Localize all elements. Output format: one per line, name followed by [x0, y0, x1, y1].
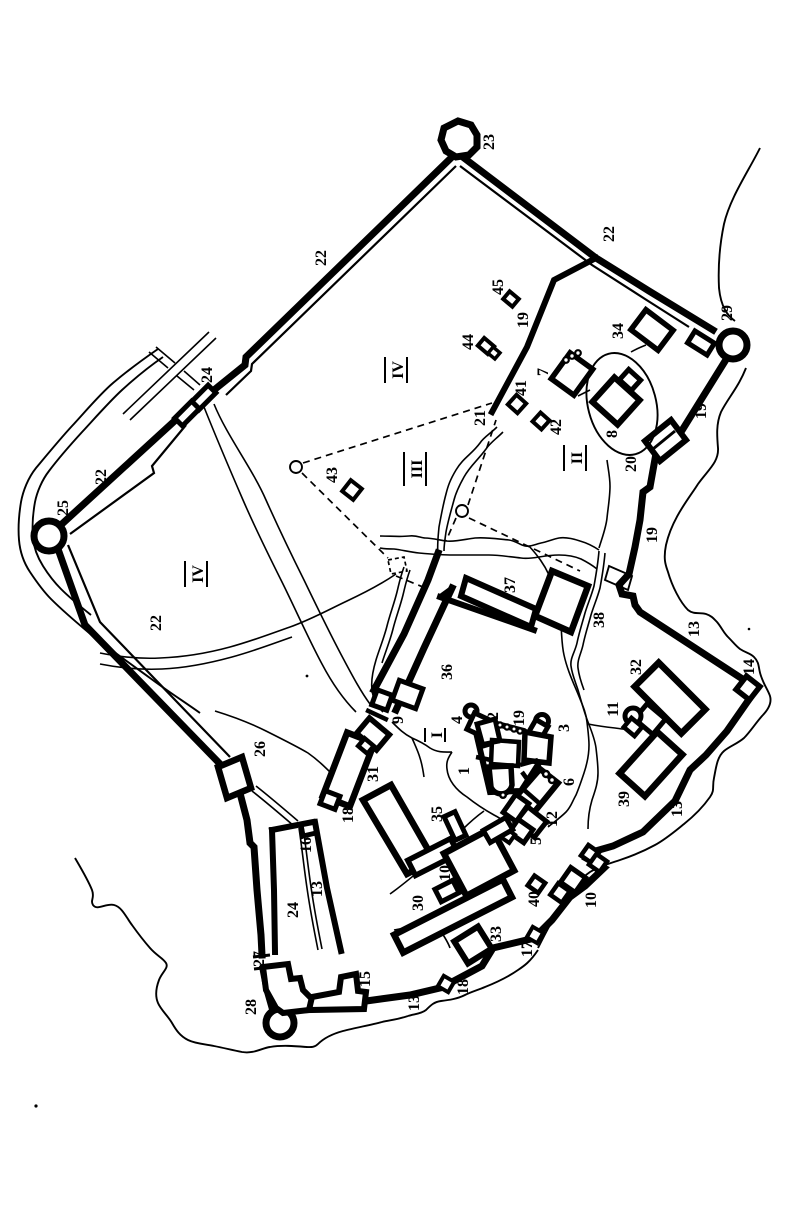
svg-text:23: 23 — [481, 134, 498, 150]
svg-text:34: 34 — [610, 323, 627, 339]
svg-text:13: 13 — [406, 995, 423, 1011]
svg-text:11: 11 — [605, 701, 622, 716]
svg-text:10: 10 — [437, 865, 454, 881]
svg-text:18: 18 — [455, 979, 472, 995]
svg-text:14: 14 — [741, 659, 758, 675]
svg-text:18: 18 — [340, 807, 357, 823]
svg-text:19: 19 — [693, 403, 710, 419]
svg-text:26: 26 — [252, 741, 269, 757]
svg-text:33: 33 — [488, 926, 505, 942]
svg-text:17: 17 — [519, 941, 536, 957]
svg-text:13: 13 — [309, 881, 326, 897]
svg-text:44: 44 — [460, 334, 477, 350]
svg-text:24: 24 — [199, 367, 216, 383]
svg-text:13: 13 — [686, 621, 703, 637]
svg-text:5: 5 — [528, 837, 545, 845]
svg-text:42: 42 — [548, 419, 565, 435]
svg-text:45: 45 — [490, 279, 507, 295]
svg-text:4: 4 — [449, 716, 466, 724]
svg-text:22: 22 — [601, 226, 618, 242]
svg-text:3: 3 — [556, 724, 573, 732]
svg-text:37: 37 — [502, 577, 519, 593]
svg-text:40: 40 — [526, 891, 543, 907]
svg-text:III: III — [409, 460, 426, 479]
svg-text:24: 24 — [285, 902, 302, 918]
svg-text:13: 13 — [669, 801, 686, 817]
svg-text:29: 29 — [719, 305, 736, 321]
svg-text:28: 28 — [243, 999, 260, 1015]
svg-text:9: 9 — [390, 716, 407, 724]
svg-text:19: 19 — [511, 710, 528, 726]
svg-text:25: 25 — [55, 500, 72, 516]
svg-text:I: I — [429, 732, 446, 738]
svg-text:30: 30 — [410, 895, 427, 911]
svg-text:16: 16 — [298, 837, 315, 853]
svg-text:6: 6 — [561, 778, 578, 786]
svg-text:15: 15 — [357, 971, 374, 987]
svg-text:21: 21 — [472, 410, 489, 426]
svg-text:1: 1 — [456, 767, 473, 775]
svg-text:38: 38 — [591, 612, 608, 628]
svg-text:22: 22 — [313, 250, 330, 266]
svg-text:43: 43 — [324, 467, 341, 483]
svg-text:22: 22 — [93, 469, 110, 485]
svg-text:10: 10 — [583, 892, 600, 908]
svg-text:19: 19 — [515, 312, 532, 328]
svg-text:II: II — [569, 452, 586, 464]
svg-text:36: 36 — [439, 664, 456, 680]
svg-text:39: 39 — [616, 791, 633, 807]
svg-text:27: 27 — [251, 951, 268, 967]
svg-text:2: 2 — [485, 712, 502, 720]
svg-text:35: 35 — [429, 806, 446, 822]
svg-text:12: 12 — [544, 811, 561, 827]
svg-text:IV: IV — [390, 361, 407, 379]
svg-text:19: 19 — [644, 527, 661, 543]
svg-text:31: 31 — [365, 766, 382, 782]
svg-text:8: 8 — [604, 430, 621, 438]
svg-text:7: 7 — [535, 368, 552, 376]
svg-text:IV: IV — [190, 565, 207, 583]
svg-text:22: 22 — [148, 615, 165, 631]
svg-text:32: 32 — [628, 659, 645, 675]
svg-text:20: 20 — [623, 456, 640, 472]
svg-text:41: 41 — [513, 380, 530, 396]
